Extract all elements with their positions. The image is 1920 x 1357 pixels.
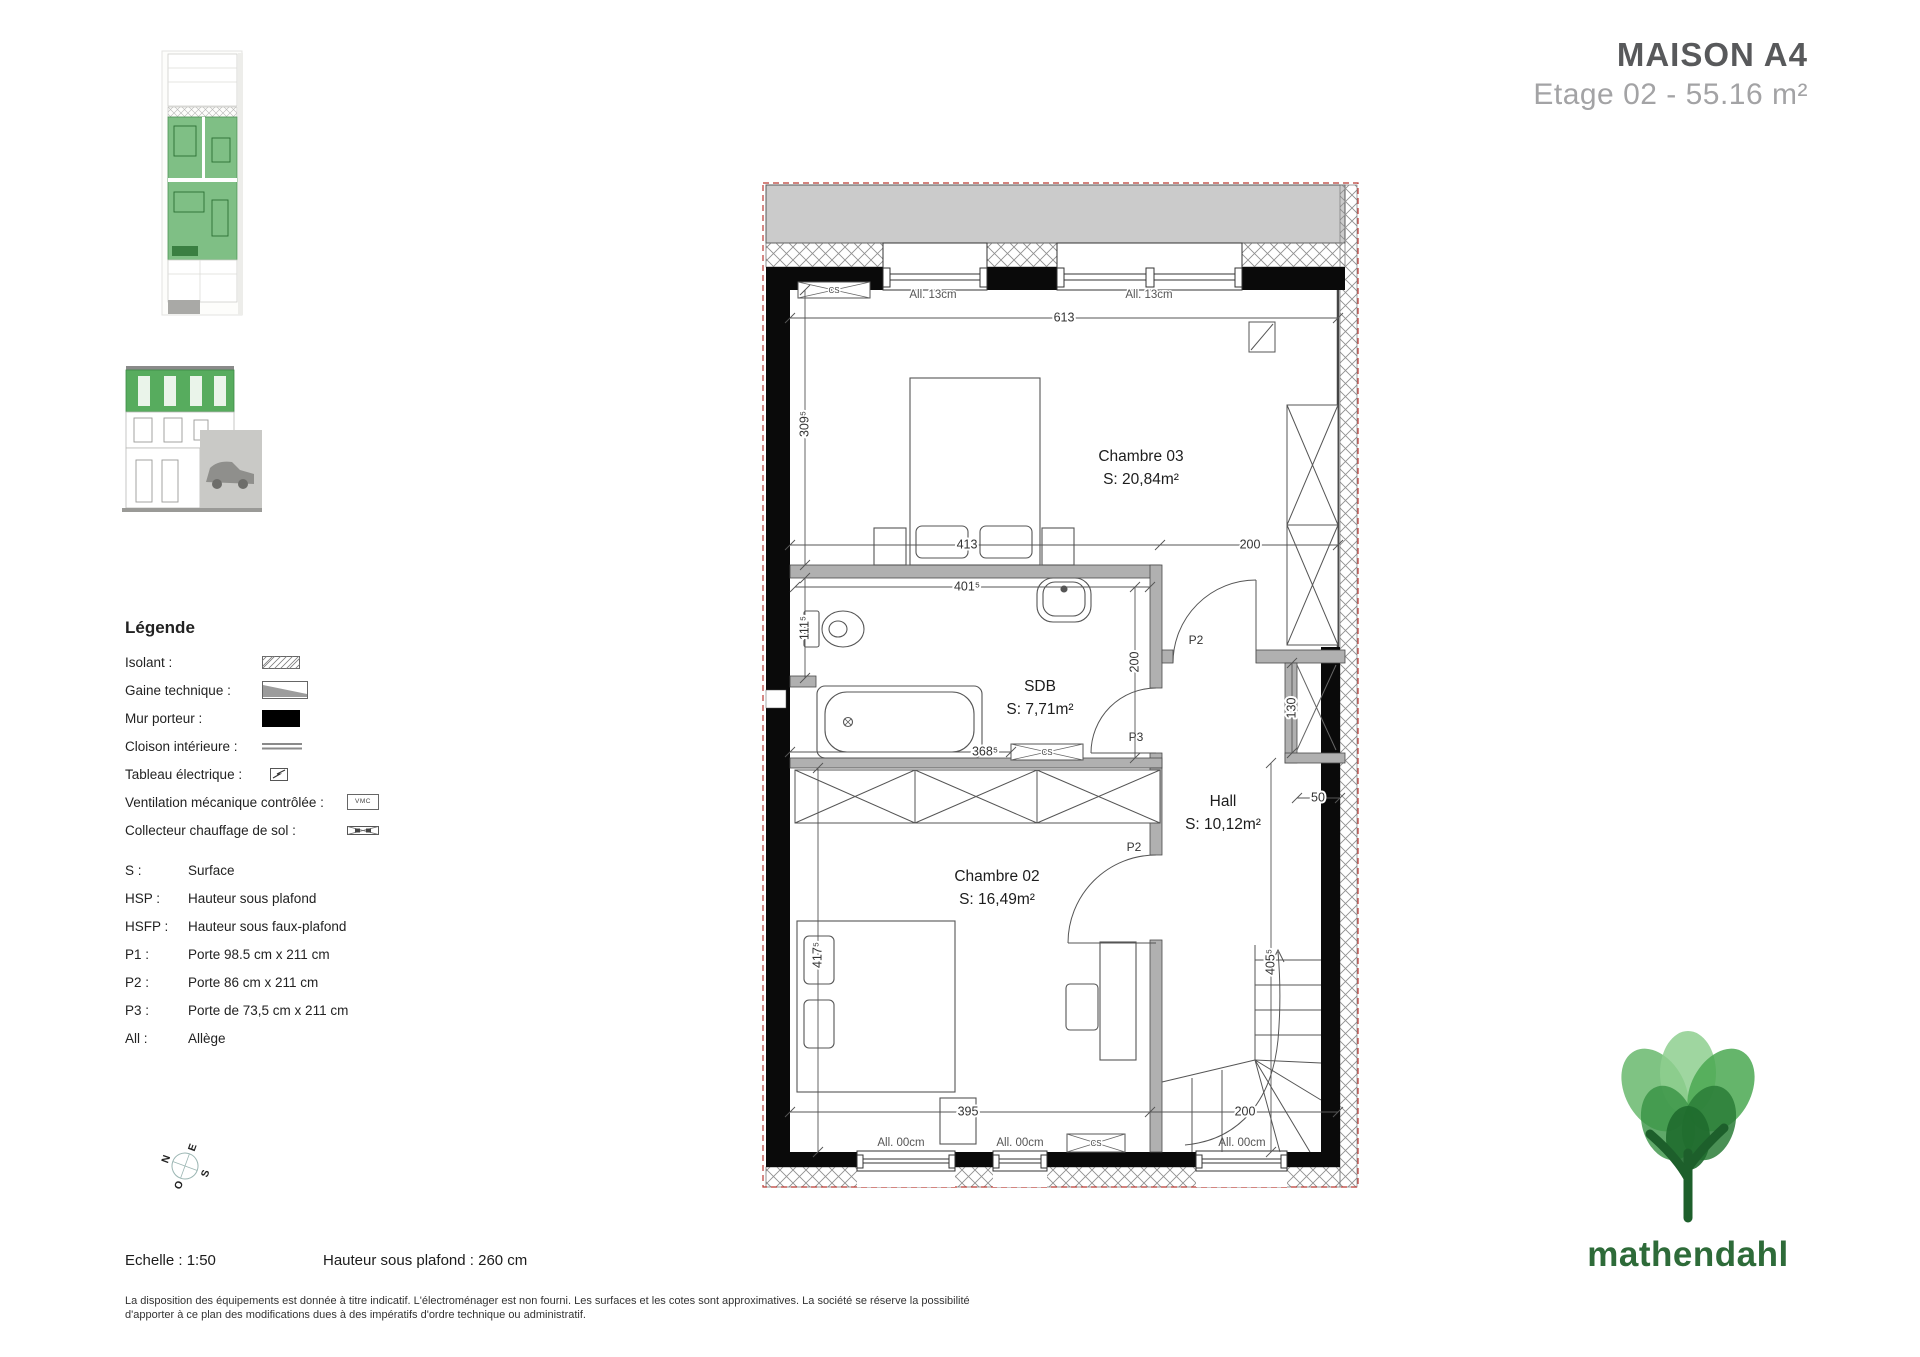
legend-label: Isolant : xyxy=(125,655,172,670)
dim-label: 111⁵ xyxy=(797,616,811,640)
room-label-sdb: SDB S: 7,71m² xyxy=(1006,678,1073,718)
heating-collector-bottom: CS xyxy=(1067,1134,1125,1152)
door-label-p2: P2 xyxy=(1189,633,1204,647)
vmc-symbol-icon: VMC xyxy=(347,794,379,811)
room-name: SDB xyxy=(1024,678,1056,695)
wardrobe-band xyxy=(795,770,1160,823)
dim-label: 309⁵ xyxy=(797,411,811,437)
ceiling-height-label: Hauteur sous plafond : 260 cm xyxy=(323,1252,527,1269)
room-area: S: 7,71m² xyxy=(1006,701,1073,718)
cs-label: CS xyxy=(1090,1139,1101,1148)
legend-label: Tableau électrique : xyxy=(125,767,242,782)
room-name: Chambre 03 xyxy=(1098,448,1183,465)
disclaimer-line2: d'apporter à ce plan des modifications d… xyxy=(125,1308,1125,1322)
dim-label: 50 xyxy=(1311,790,1325,804)
door-label-p3: P3 xyxy=(1129,730,1144,744)
title-block: MAISON A4 Etage 02 - 55.16 m² xyxy=(1533,36,1808,112)
legend-item-collecteur: Collecteur chauffage de sol : xyxy=(125,816,455,844)
legend-abbreviations: S : Surface HSP : Hauteur sous plafond H… xyxy=(125,856,455,1052)
allege-label: All. 13cm xyxy=(1125,289,1172,301)
window-top-2 xyxy=(1057,243,1242,290)
section-thumbnail xyxy=(122,360,262,517)
room-area: S: 16,49m² xyxy=(959,891,1035,908)
room-name: Hall xyxy=(1210,793,1237,810)
mini-plan-thumbnail xyxy=(160,50,245,322)
insulation-symbol-icon xyxy=(262,656,300,669)
legend-item-mur-porteur: Mur porteur : xyxy=(125,704,455,732)
cs-label: CS xyxy=(828,286,839,295)
page-subtitle: Etage 02 - 55.16 m² xyxy=(1533,78,1808,112)
dim-label: 368⁵ xyxy=(972,744,998,758)
abbrev-key: P2 : xyxy=(125,975,188,990)
staircase xyxy=(1162,945,1321,1152)
tree-logo-icon xyxy=(1578,1018,1798,1228)
abbrev-desc: Porte de 73,5 cm x 211 cm xyxy=(188,1003,348,1018)
compass-n: N xyxy=(159,1154,173,1165)
dim-label: 130 xyxy=(1284,698,1298,719)
disclaimer-line1: La disposition des équipements est donné… xyxy=(125,1294,1125,1308)
window-bottom-3 xyxy=(1196,1149,1287,1187)
abbrev-desc: Hauteur sous faux-plafond xyxy=(188,919,346,934)
compass-e: E xyxy=(186,1142,200,1153)
door-p2-hall xyxy=(1173,580,1256,663)
legend-label: Collecteur chauffage de sol : xyxy=(125,823,296,838)
legend-label: Gaine technique : xyxy=(125,683,231,698)
abbrev-desc: Porte 98.5 cm x 211 cm xyxy=(188,947,330,962)
dim-label: 405⁵ xyxy=(1263,949,1277,975)
abbrev-key: S : xyxy=(125,863,188,878)
compass-o: O xyxy=(172,1179,186,1191)
room-name: Chambre 02 xyxy=(954,868,1039,885)
door-p3-sdb xyxy=(1091,688,1156,753)
cs-label: CS xyxy=(1041,748,1052,757)
legend-heading: Légende xyxy=(125,618,455,638)
room-label-hall: Hall S: 10,12m² xyxy=(1185,793,1261,833)
legend: Légende Isolant : Gaine technique : Mur … xyxy=(125,618,455,1052)
abbrev-key: HSFP : xyxy=(125,919,188,934)
brand-logo: mathendahl xyxy=(1578,1018,1798,1275)
partition-symbol-icon xyxy=(262,742,302,750)
abbrev-key: HSP : xyxy=(125,891,188,906)
brand-name: mathendahl xyxy=(1578,1235,1798,1275)
window-bottom-2 xyxy=(993,1149,1047,1187)
compass-rose: N E S O xyxy=(155,1136,215,1201)
section-graphic xyxy=(122,360,262,512)
allege-label: All. 00cm xyxy=(877,1137,924,1149)
room-label-chambre03: Chambre 03 S: 20,84m² xyxy=(1098,448,1183,488)
abbrev-desc: Surface xyxy=(188,863,235,878)
compass-s: S xyxy=(199,1168,213,1179)
legend-item-vmc: Ventilation mécanique contrôlée : VMC xyxy=(125,788,455,816)
abbrev-key: P3 : xyxy=(125,1003,188,1018)
legend-label: Cloison intérieure : xyxy=(125,739,238,754)
wardrobe-chambre03 xyxy=(1287,405,1338,645)
terrace-band xyxy=(766,185,1345,243)
page-title: MAISON A4 xyxy=(1533,36,1808,74)
abbrev-row: S : Surface xyxy=(125,856,455,884)
heating-collector-top: CS xyxy=(798,282,870,298)
wall-niche xyxy=(766,690,786,708)
abbrev-row: P3 : Porte de 73,5 cm x 211 cm xyxy=(125,996,455,1024)
dim-label: 200 xyxy=(1240,537,1261,551)
dim-label: 200 xyxy=(1127,652,1141,673)
legend-item-isolant: Isolant : xyxy=(125,648,455,676)
abbrev-desc: Hauteur sous plafond xyxy=(188,891,316,906)
abbrev-row: P2 : Porte 86 cm x 211 cm xyxy=(125,968,455,996)
disclaimer: La disposition des équipements est donné… xyxy=(125,1294,1125,1322)
room-area: S: 10,12m² xyxy=(1185,816,1261,833)
abbrev-row: All : Allège xyxy=(125,1024,455,1052)
allege-label: All. 00cm xyxy=(1218,1137,1265,1149)
abbrev-key: P1 : xyxy=(125,947,188,962)
allege-label: All. 00cm xyxy=(996,1137,1043,1149)
room-area: S: 20,84m² xyxy=(1103,471,1179,488)
abbrev-desc: Allège xyxy=(188,1031,226,1046)
abbrev-desc: Porte 86 cm x 211 cm xyxy=(188,975,318,990)
abbrev-row: HSP : Hauteur sous plafond xyxy=(125,884,455,912)
technical-duct-symbol-icon xyxy=(262,681,308,699)
compass-graphic: N E S O xyxy=(155,1136,215,1196)
electrical-panel-icon xyxy=(1249,322,1275,352)
dim-label: 395 xyxy=(958,1104,979,1118)
dim-label: 613 xyxy=(1054,310,1075,324)
allege-label: All. 13cm xyxy=(909,289,956,301)
dim-label: 413 xyxy=(957,537,978,551)
sink-icon xyxy=(1037,578,1091,622)
legend-label: Mur porteur : xyxy=(125,711,202,726)
load-bearing-wall-symbol-icon xyxy=(262,710,300,727)
abbrev-row: P1 : Porte 98.5 cm x 211 cm xyxy=(125,940,455,968)
abbrev-key: All : xyxy=(125,1031,188,1046)
door-p2-chambre02 xyxy=(1068,855,1156,943)
dim-label: 200 xyxy=(1235,1104,1256,1118)
heating-collector-sdb: CS xyxy=(1011,744,1083,760)
floor-plan: All. 13cm All. 13cm All. 00cm All. 00cm … xyxy=(750,170,1380,1200)
desk-chambre02 xyxy=(1066,942,1136,1060)
toilet-icon xyxy=(804,611,864,647)
door-label-p2b: P2 xyxy=(1127,840,1142,854)
window-top-1 xyxy=(883,243,987,290)
electrical-panel-symbol-icon xyxy=(270,768,288,781)
floor-heating-collector-symbol-icon xyxy=(347,826,379,835)
window-bottom-1 xyxy=(857,1149,955,1187)
vmc-symbol-text: VMC xyxy=(347,794,379,811)
dim-label: 401⁵ xyxy=(954,579,980,593)
room-label-chambre02: Chambre 02 S: 16,49m² xyxy=(954,868,1039,908)
abbrev-row: HSFP : Hauteur sous faux-plafond xyxy=(125,912,455,940)
dim-label: 417⁵ xyxy=(810,942,824,968)
bathtub-icon xyxy=(817,686,982,758)
legend-item-tableau: Tableau électrique : xyxy=(125,760,455,788)
legend-item-gaine: Gaine technique : xyxy=(125,676,455,704)
legend-item-cloison: Cloison intérieure : xyxy=(125,732,455,760)
legend-label: Ventilation mécanique contrôlée : xyxy=(125,795,324,810)
scale-label: Echelle : 1:50 xyxy=(125,1252,216,1269)
mini-plan-graphic xyxy=(160,50,245,317)
